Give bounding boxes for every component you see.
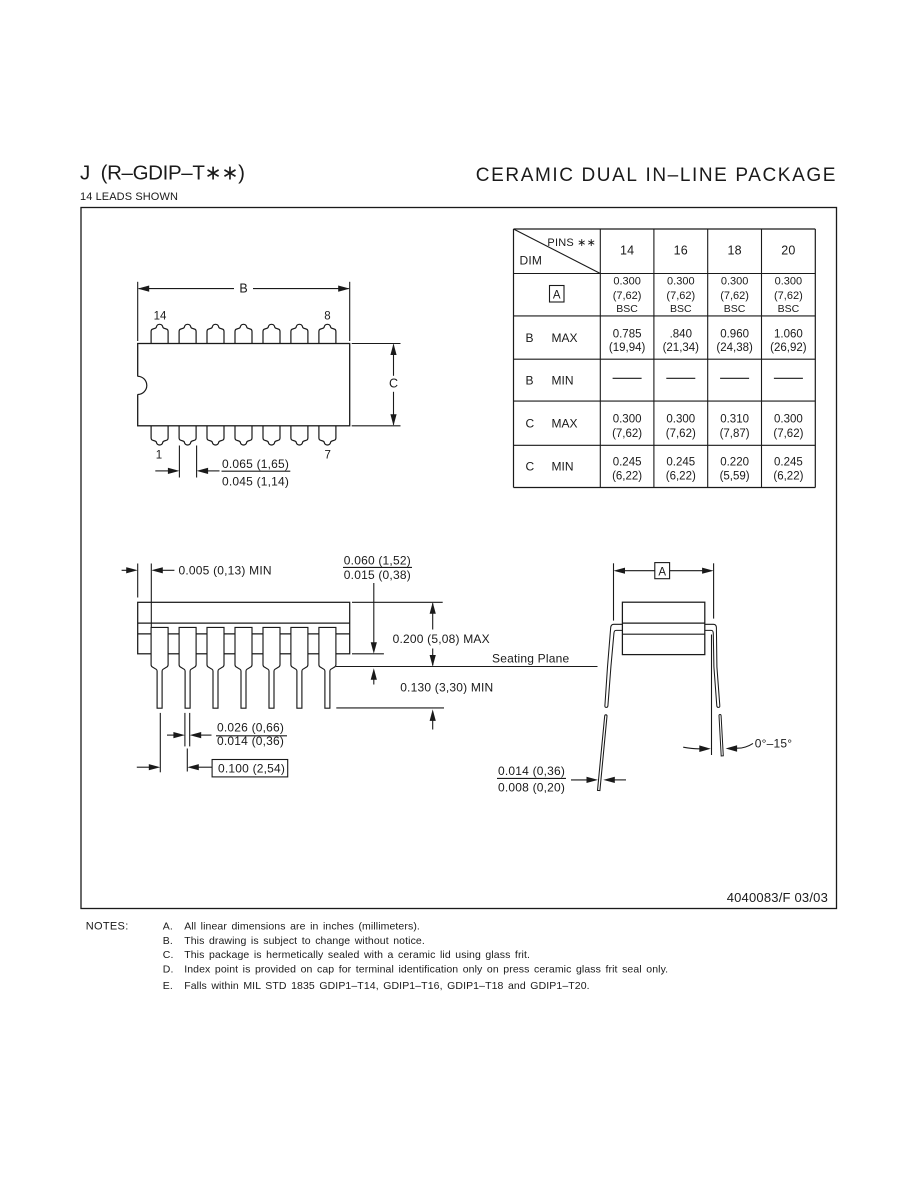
svg-text:0.200 (5,08) MAX: 0.200 (5,08) MAX <box>393 632 490 646</box>
svg-text:DIM: DIM <box>520 254 543 268</box>
svg-text:1: 1 <box>156 449 162 461</box>
svg-text:20: 20 <box>781 244 795 258</box>
svg-text:CERAMIC DUAL IN–LINE PACKAGE: CERAMIC DUAL IN–LINE PACKAGE <box>476 165 837 186</box>
svg-text:All linear dimensions are in i: All linear dimensions are in inches (mil… <box>184 920 420 932</box>
svg-text:(21,34): (21,34) <box>663 342 700 354</box>
svg-text:B: B <box>239 282 247 296</box>
svg-text:This package is hermetically s: This package is hermetically sealed with… <box>184 949 530 961</box>
svg-text:(6,22): (6,22) <box>612 471 642 483</box>
svg-text:(26,92): (26,92) <box>770 342 807 354</box>
svg-text:0.130 (3,30) MIN: 0.130 (3,30) MIN <box>400 681 493 695</box>
svg-text:Seating Plane: Seating Plane <box>492 652 569 666</box>
svg-text:8: 8 <box>324 311 330 323</box>
svg-text:(19,94): (19,94) <box>609 342 646 354</box>
svg-text:A: A <box>553 289 561 301</box>
svg-text:0.960: 0.960 <box>720 328 749 340</box>
svg-text:This drawing is subject to cha: This drawing is subject to change withou… <box>184 935 425 947</box>
svg-text:0.300: 0.300 <box>721 275 749 287</box>
svg-text:0.310: 0.310 <box>720 414 749 426</box>
svg-text:MAX: MAX <box>552 417 578 431</box>
svg-text:MIN: MIN <box>552 374 574 388</box>
svg-text:0.060 (1,52): 0.060 (1,52) <box>344 553 411 567</box>
svg-text:0°–15°: 0°–15° <box>755 737 793 751</box>
svg-text:0.300: 0.300 <box>774 414 803 426</box>
svg-text:PINS ∗∗: PINS ∗∗ <box>547 237 596 249</box>
svg-text:(24,38): (24,38) <box>716 342 753 354</box>
svg-text:7: 7 <box>324 449 330 461</box>
svg-text:(7,87): (7,87) <box>720 428 750 440</box>
svg-text:0.300: 0.300 <box>775 275 803 287</box>
svg-text:J (R–GDIP–T∗∗): J (R–GDIP–T∗∗) <box>80 162 245 185</box>
svg-text:E.: E. <box>163 980 173 992</box>
svg-text:18: 18 <box>727 244 741 258</box>
svg-text:C.: C. <box>163 949 174 961</box>
svg-text:(7,62): (7,62) <box>773 428 803 440</box>
svg-text:0.300: 0.300 <box>666 414 695 426</box>
svg-text:MIN: MIN <box>552 460 574 474</box>
svg-text:BSC: BSC <box>616 303 638 315</box>
svg-text:16: 16 <box>674 244 688 258</box>
svg-text:MAX: MAX <box>552 331 578 345</box>
svg-text:BSC: BSC <box>670 303 692 315</box>
svg-text:0.220: 0.220 <box>720 456 749 468</box>
svg-text:0.300: 0.300 <box>667 275 695 287</box>
svg-text:A: A <box>658 566 666 578</box>
svg-text:1.060: 1.060 <box>774 328 803 340</box>
svg-text:(7,62): (7,62) <box>666 428 696 440</box>
svg-text:0.785: 0.785 <box>613 328 642 340</box>
svg-text:Index point is provided on cap: Index point is provided on cap for termi… <box>184 964 668 976</box>
svg-text:0.005 (0,13) MIN: 0.005 (0,13) MIN <box>179 563 272 577</box>
svg-text:(5,59): (5,59) <box>720 471 750 483</box>
svg-text:0.245: 0.245 <box>774 456 803 468</box>
svg-text:(7,62): (7,62) <box>666 290 695 302</box>
svg-text:0.065 (1,65): 0.065 (1,65) <box>222 457 289 471</box>
svg-text:(6,22): (6,22) <box>773 471 803 483</box>
svg-text:(7,62): (7,62) <box>612 428 642 440</box>
svg-text:B: B <box>526 374 534 388</box>
svg-text:14: 14 <box>154 311 167 323</box>
svg-text:0.014 (0,36): 0.014 (0,36) <box>498 764 565 778</box>
svg-text:.840: .840 <box>670 328 692 340</box>
svg-text:4040083/F 03/03: 4040083/F 03/03 <box>727 890 828 905</box>
svg-text:C: C <box>526 460 535 474</box>
svg-text:Falls within MIL STD 1835 GDIP: Falls within MIL STD 1835 GDIP1–T14, GDI… <box>184 980 589 992</box>
svg-text:A.: A. <box>163 920 173 932</box>
svg-text:(7,62): (7,62) <box>720 290 749 302</box>
svg-text:0.014 (0,36): 0.014 (0,36) <box>217 734 284 748</box>
svg-text:BSC: BSC <box>724 303 746 315</box>
svg-text:(7,62): (7,62) <box>774 290 803 302</box>
svg-text:0.245: 0.245 <box>666 456 695 468</box>
svg-text:0.026 (0,66): 0.026 (0,66) <box>217 720 284 734</box>
svg-text:14: 14 <box>620 244 634 258</box>
svg-text:0.015 (0,38): 0.015 (0,38) <box>344 568 411 582</box>
svg-text:NOTES:: NOTES: <box>86 920 129 932</box>
svg-text:0.245: 0.245 <box>613 456 642 468</box>
svg-text:C: C <box>526 417 535 431</box>
svg-text:B.: B. <box>163 935 173 947</box>
svg-text:D.: D. <box>163 964 174 976</box>
svg-text:0.300: 0.300 <box>613 275 641 287</box>
svg-text:14 LEADS SHOWN: 14 LEADS SHOWN <box>80 191 178 203</box>
svg-text:(6,22): (6,22) <box>666 471 696 483</box>
svg-text:0.300: 0.300 <box>613 414 642 426</box>
svg-text:C: C <box>389 376 398 390</box>
svg-text:BSC: BSC <box>778 303 800 315</box>
svg-text:0.100 (2,54): 0.100 (2,54) <box>218 761 285 775</box>
svg-text:0.008 (0,20): 0.008 (0,20) <box>498 781 565 795</box>
svg-text:B: B <box>526 331 534 345</box>
svg-text:0.045 (1,14): 0.045 (1,14) <box>222 474 289 488</box>
svg-text:(7,62): (7,62) <box>613 290 642 302</box>
